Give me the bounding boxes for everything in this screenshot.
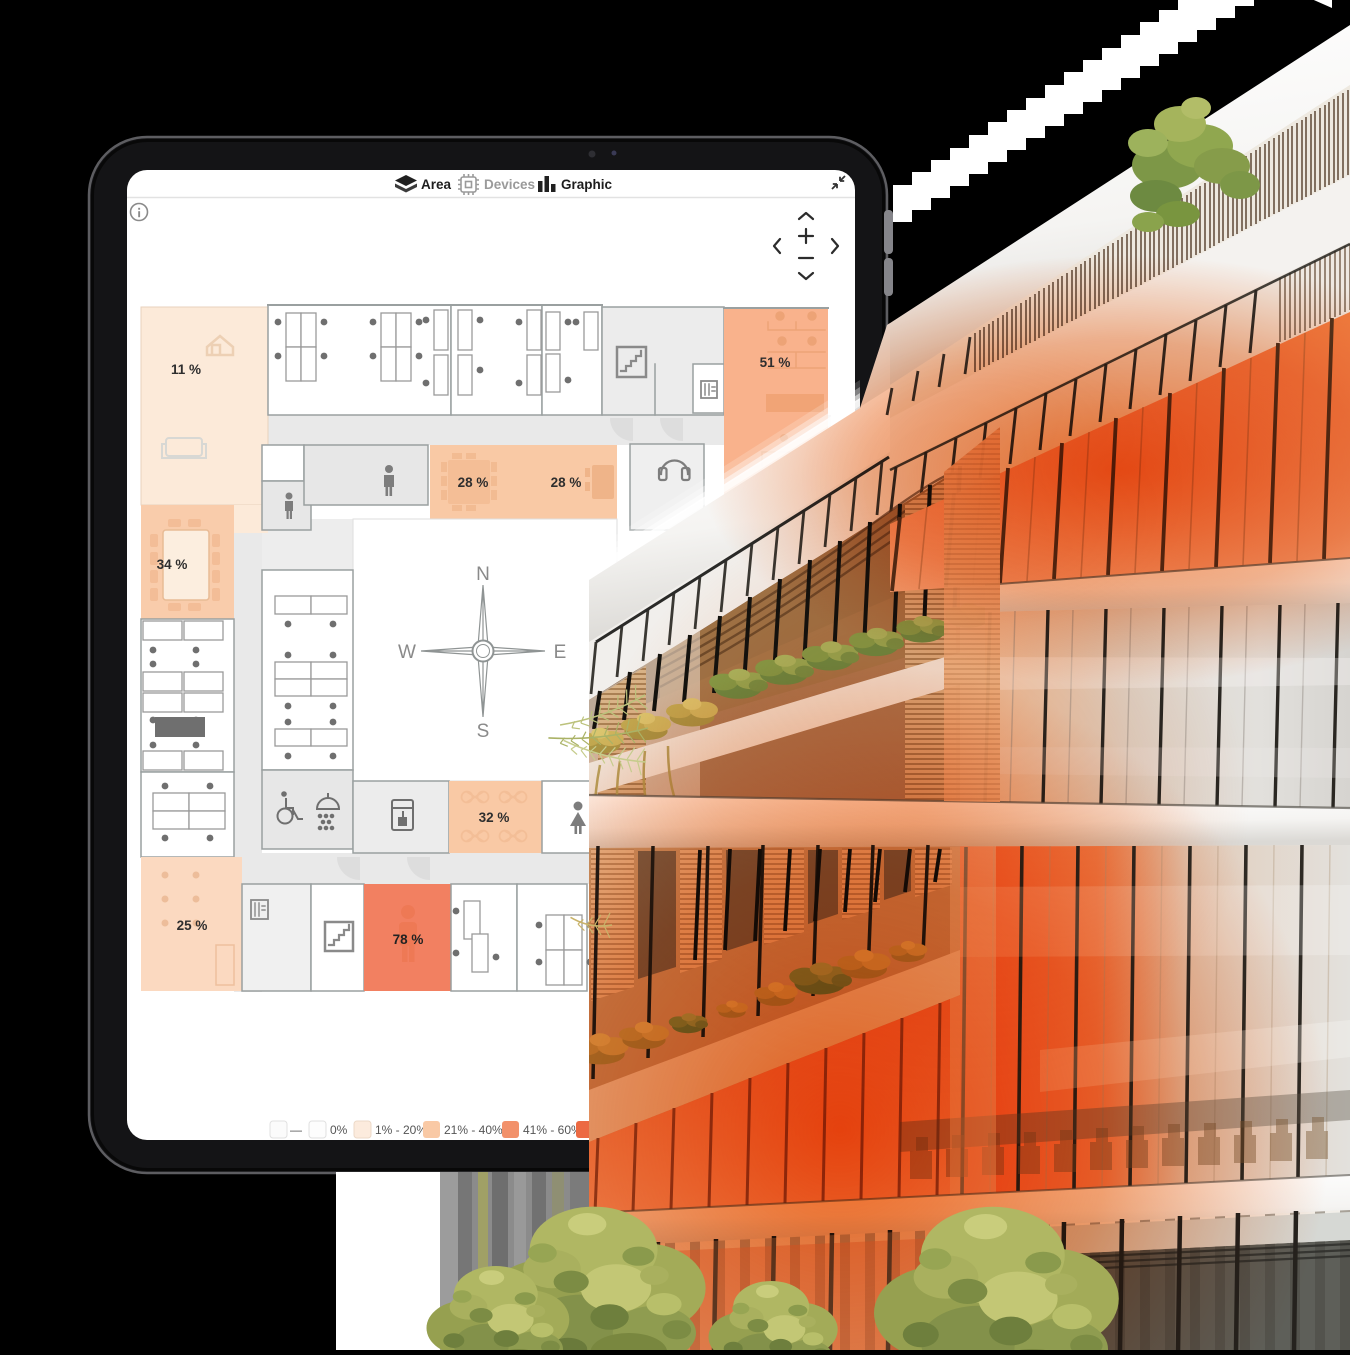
svg-text:N: N bbox=[476, 564, 490, 585]
svg-text:Area: Area bbox=[421, 177, 452, 192]
svg-text:28 %: 28 % bbox=[551, 475, 582, 490]
svg-text:S: S bbox=[477, 721, 490, 742]
svg-text:—: — bbox=[290, 1123, 302, 1137]
svg-text:41% - 60%: 41% - 60% bbox=[523, 1123, 582, 1137]
svg-text:0%: 0% bbox=[330, 1123, 348, 1137]
svg-text:32 %: 32 % bbox=[479, 810, 510, 825]
svg-text:1% - 20%: 1% - 20% bbox=[375, 1123, 427, 1137]
svg-text:Graphic: Graphic bbox=[561, 177, 613, 192]
svg-text:Devices: Devices bbox=[484, 177, 535, 192]
svg-text:34 %: 34 % bbox=[157, 557, 188, 572]
svg-text:28 %: 28 % bbox=[458, 475, 489, 490]
svg-text:25 %: 25 % bbox=[177, 918, 208, 933]
svg-text:21% - 40%: 21% - 40% bbox=[444, 1123, 503, 1137]
svg-text:51 %: 51 % bbox=[760, 355, 791, 370]
svg-text:78 %: 78 % bbox=[393, 932, 424, 947]
svg-text:11 %: 11 % bbox=[171, 362, 201, 377]
svg-text:E: E bbox=[554, 642, 567, 663]
svg-text:W: W bbox=[398, 642, 416, 663]
